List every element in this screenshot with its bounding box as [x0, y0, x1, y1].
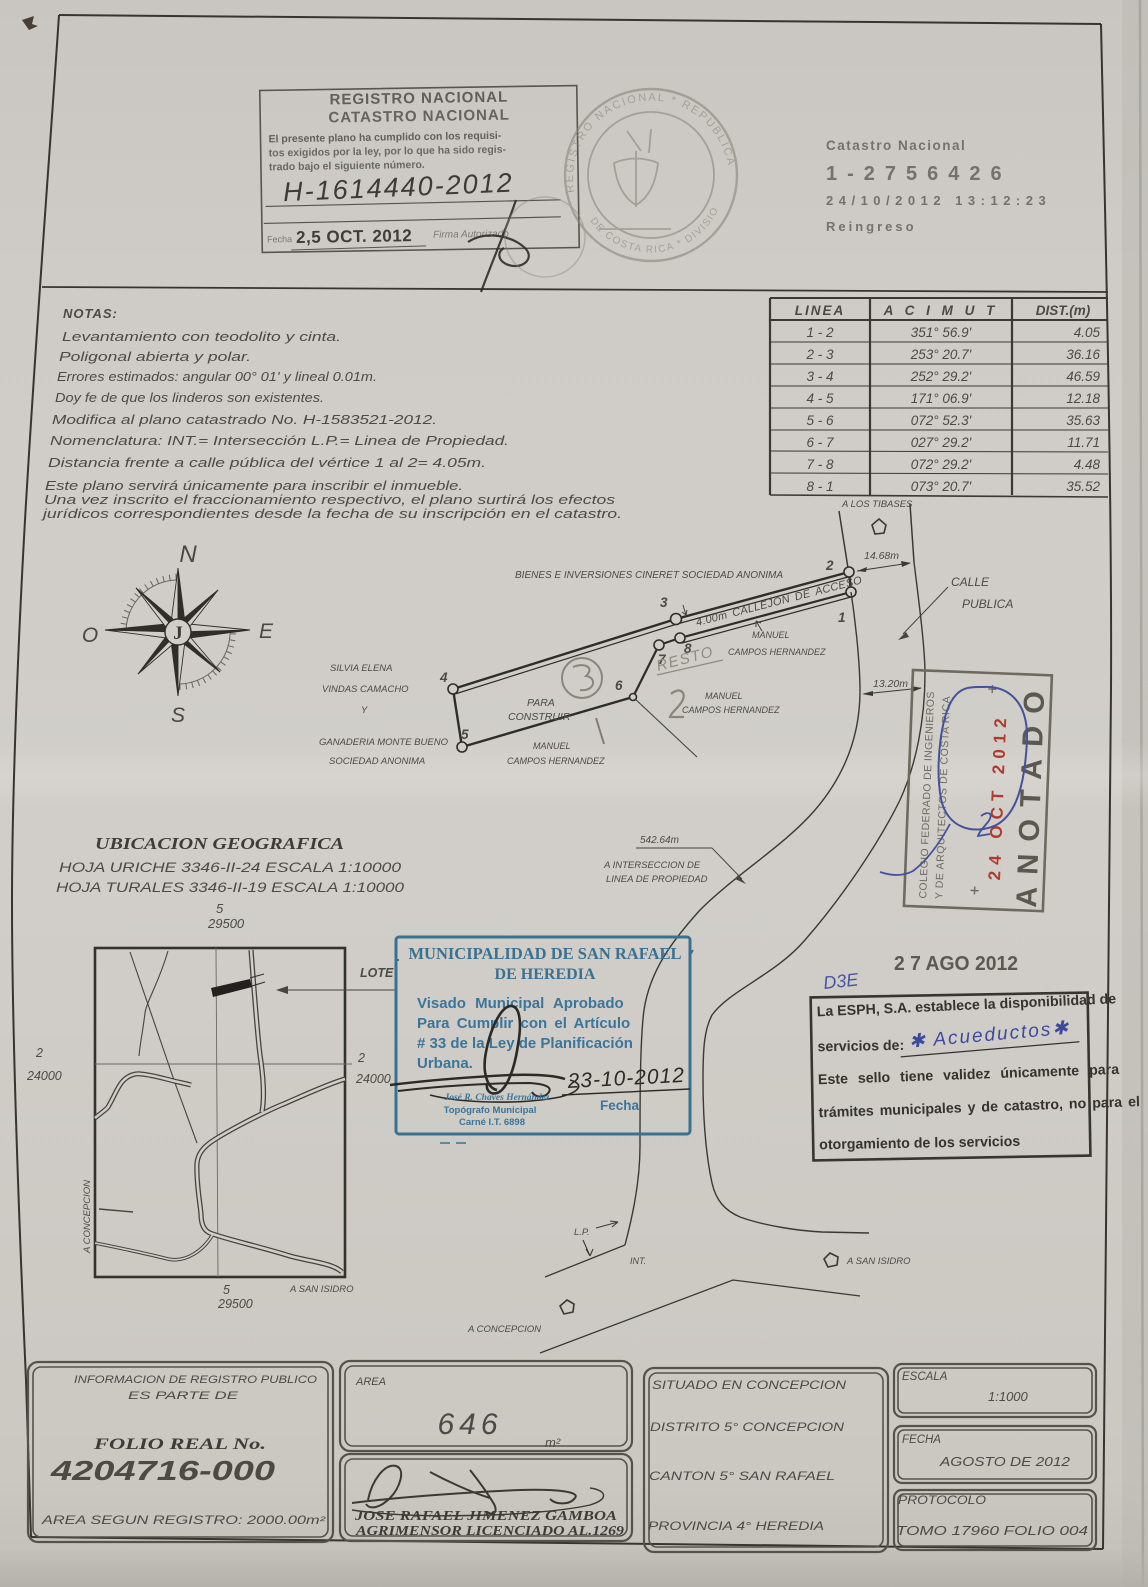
svg-text:O: O: [82, 624, 98, 647]
svg-text:2 - 3: 2 - 3: [805, 347, 834, 362]
svg-text:Errores estimados: angular 00°: Errores estimados: angular 00° 01' y lin…: [57, 369, 377, 384]
svg-text:1 - 2: 1 - 2: [806, 325, 834, 340]
svg-text:LOTE: LOTE: [360, 966, 394, 980]
svg-text:ES PARTE DE: ES PARTE DE: [128, 1390, 239, 1402]
svg-text:L.P.: L.P.: [574, 1227, 590, 1238]
svg-text:SITUADO EN CONCEPCION: SITUADO EN CONCEPCION: [652, 1378, 846, 1392]
svg-text:A SAN ISIDRO: A SAN ISIDRO: [846, 1256, 911, 1267]
svg-text:AGOSTO DE 2012: AGOSTO DE 2012: [939, 1455, 1070, 1469]
svg-text:LINEA: LINEA: [795, 303, 846, 318]
svg-text:SOCIEDAD ANONIMA: SOCIEDAD ANONIMA: [329, 756, 425, 767]
svg-text:E: E: [259, 620, 274, 643]
svg-text:072° 52.3': 072° 52.3': [911, 413, 972, 428]
svg-text:14.68m: 14.68m: [864, 550, 899, 562]
svg-text:SILVIA ELENA: SILVIA ELENA: [330, 663, 393, 674]
svg-text:46.59: 46.59: [1066, 369, 1100, 384]
svg-text:7 - 8: 7 - 8: [806, 457, 834, 472]
svg-text:A CONCEPCION: A CONCEPCION: [467, 1324, 541, 1335]
svg-text:MANUEL: MANUEL: [752, 630, 790, 640]
svg-text:CONSTRUIR: CONSTRUIR: [508, 711, 571, 723]
svg-text:D3E: D3E: [822, 969, 860, 993]
svg-text:A LOS TIBASES: A LOS TIBASES: [841, 499, 913, 510]
svg-text:5: 5: [461, 727, 469, 742]
svg-text:29500: 29500: [207, 916, 245, 931]
svg-text:Doy fe de que los linderos son: Doy fe de que los linderos son existente…: [55, 390, 324, 405]
svg-text:24000: 24000: [26, 1069, 62, 1083]
svg-text:252° 29.2': 252° 29.2': [910, 369, 972, 384]
svg-text:DE HEREDIA: DE HEREDIA: [495, 966, 596, 983]
svg-text:5 - 6: 5 - 6: [806, 413, 834, 428]
svg-text:S: S: [171, 704, 185, 727]
svg-text:TOMO 17960 FOLIO 004: TOMO 17960 FOLIO 004: [896, 1524, 1088, 1538]
svg-text:servicios de:: servicios de:: [817, 1038, 904, 1056]
svg-text:073° 20.7': 073° 20.7': [911, 479, 972, 494]
svg-text:24/10/2012 13:12:23: 24/10/2012 13:12:23: [826, 193, 1051, 208]
svg-text:CANTON 5° SAN RAFAEL: CANTON 5° SAN RAFAEL: [649, 1469, 835, 1483]
svg-text:6 - 7: 6 - 7: [806, 435, 834, 450]
svg-text:AGRIMENSOR LICENCIADO AL.1269: AGRIMENSOR LICENCIADO AL.1269: [355, 1523, 624, 1538]
svg-text:m²: m²: [545, 1435, 561, 1450]
svg-text:PUBLICA: PUBLICA: [962, 597, 1013, 611]
svg-text:GANADERIA MONTE BUENO: GANADERIA MONTE BUENO: [319, 737, 449, 748]
svg-text:2,5 OCT. 2012: 2,5 OCT. 2012: [296, 226, 412, 247]
svg-text:DISTRITO 5° CONCEPCION: DISTRITO 5° CONCEPCION: [650, 1420, 844, 1434]
svg-text:UBICACION GEOGRAFICA: UBICACION GEOGRAFICA: [95, 834, 344, 853]
svg-text:JOSE RAFAEL JIMENEZ GAMBOA: JOSE RAFAEL JIMENEZ GAMBOA: [354, 1508, 617, 1523]
svg-text:Reingreso: Reingreso: [826, 219, 917, 234]
svg-text:A CONCEPCION: A CONCEPCION: [82, 1180, 93, 1254]
svg-text:4.48: 4.48: [1074, 457, 1101, 472]
svg-text:PARA: PARA: [527, 697, 555, 709]
svg-text:LINEA DE PROPIEDAD: LINEA DE PROPIEDAD: [606, 874, 708, 885]
svg-text:6: 6: [615, 678, 623, 693]
svg-text:Fecha: Fecha: [600, 1098, 640, 1113]
svg-text:2: 2: [35, 1046, 43, 1060]
svg-text:FECHA: FECHA: [902, 1434, 941, 1446]
svg-text:jurídicos correspondientes des: jurídicos correspondientes desde la fech…: [40, 506, 622, 521]
svg-text:INFORMACION DE REGISTRO PUB: INFORMACION DE REGISTRO PUBLICO: [74, 1374, 318, 1386]
svg-text:Poligonal abierta y polar.: Poligonal abierta y polar.: [59, 349, 251, 364]
svg-text:1: 1: [838, 610, 846, 625]
svg-text:4: 4: [439, 670, 448, 685]
svg-text:2: 2: [825, 558, 834, 573]
svg-text:Y: Y: [361, 705, 368, 716]
svg-text:N: N: [179, 541, 197, 568]
svg-text:35.52: 35.52: [1066, 479, 1100, 494]
svg-text:542.64m: 542.64m: [640, 835, 679, 846]
svg-text:Distancia frente a calle públi: Distancia frente a calle pública del vér…: [48, 455, 486, 470]
svg-text:José R. Chaves Hernández: José R. Chaves Hernández: [443, 1093, 549, 1103]
svg-text:CAMPOS HERNANDEZ: CAMPOS HERNANDEZ: [507, 756, 605, 766]
svg-text:HOJA TURALES 3346-II-19 ESCALA: HOJA TURALES 3346-II-19 ESCALA 1:10000: [56, 879, 404, 895]
svg-text:Urbana.: Urbana.: [417, 1055, 473, 1072]
svg-text:Este plano servirá únicamente: Este plano servirá únicamente para inscr…: [45, 478, 463, 493]
svg-text:Topógrafo Municipal: Topógrafo Municipal: [444, 1105, 537, 1116]
svg-text:646: 646: [437, 1408, 502, 1441]
svg-text:1:1000: 1:1000: [988, 1389, 1029, 1404]
svg-text:CAMPOS HERNANDEZ: CAMPOS HERNANDEZ: [728, 647, 826, 657]
svg-text:4 - 5: 4 - 5: [806, 391, 834, 406]
svg-text:36.16: 36.16: [1066, 347, 1100, 362]
svg-text:3: 3: [660, 595, 668, 610]
svg-text:Fecha: Fecha: [267, 234, 292, 244]
svg-text:REGISTRO NACIONAL: REGISTRO NACIONAL: [329, 89, 508, 109]
svg-text:A C I M U T: A C I M U T: [883, 303, 999, 318]
svg-text:Levantamiento con teodolito y: Levantamiento con teodolito y cinta.: [62, 329, 341, 344]
svg-text:J: J: [173, 623, 183, 644]
svg-text:3 - 4: 3 - 4: [806, 369, 833, 384]
svg-text:Catastro Nacional: Catastro Nacional: [826, 138, 966, 153]
svg-text:1-2756426: 1-2756426: [826, 163, 1012, 185]
svg-text:24000: 24000: [355, 1072, 391, 1086]
svg-text:DIST.(m): DIST.(m): [1036, 303, 1091, 318]
svg-text:5: 5: [216, 901, 224, 916]
svg-text:MANUEL: MANUEL: [533, 741, 571, 751]
svg-text:CAMPOS HERNANDEZ: CAMPOS HERNANDEZ: [682, 705, 780, 715]
svg-text:5: 5: [223, 1283, 230, 1297]
svg-text:29500: 29500: [217, 1297, 253, 1311]
svg-text:2 7 AGO 2012: 2 7 AGO 2012: [894, 953, 1018, 975]
svg-text:PROTOCOLO: PROTOCOLO: [898, 1495, 986, 1507]
svg-text:AREA SEGUN REGISTRO: 2000.0: AREA SEGUN REGISTRO: 2000.00m²: [41, 1515, 327, 1527]
svg-text:Carné I.T. 6898: Carné I.T. 6898: [459, 1117, 525, 1128]
svg-text:MUNICIPALIDAD DE SAN RAFAEL: MUNICIPALIDAD DE SAN RAFAEL: [408, 944, 681, 963]
svg-text:# 33 de la Ley de Planificació: # 33 de la Ley de Planificación: [417, 1035, 633, 1052]
svg-text:AREA: AREA: [355, 1376, 386, 1388]
svg-text:Nomenclatura: INT.= Intersecci: Nomenclatura: INT.= Intersección L.P.= L…: [50, 433, 509, 448]
svg-text:PROVINCIA 4° HEREDIA: PROVINCIA 4° HEREDIA: [648, 1519, 824, 1533]
svg-text:CATASTRO NACIONAL: CATASTRO NACIONAL: [328, 107, 510, 127]
svg-text:Para Cumplir con el Artícu: Para Cumplir con el Artículo: [417, 1015, 630, 1032]
svg-text:13.20m: 13.20m: [873, 678, 908, 690]
svg-text:171° 06.9': 171° 06.9': [911, 391, 972, 406]
svg-text:ESCALA: ESCALA: [902, 1371, 948, 1383]
svg-text:4204716-000: 4204716-000: [50, 1455, 276, 1486]
svg-text:12.18: 12.18: [1066, 391, 1100, 406]
svg-text:11.71: 11.71: [1067, 435, 1100, 450]
svg-text:HOJA URICHE 3346-II-24 ESCALA: HOJA URICHE 3346-II-24 ESCALA 1:10000: [59, 859, 401, 875]
svg-text:2: 2: [357, 1051, 365, 1065]
svg-text:072° 29.2': 072° 29.2': [911, 457, 972, 472]
svg-text:VINDAS CAMACHO: VINDAS CAMACHO: [322, 684, 409, 695]
svg-text:8 - 1: 8 - 1: [806, 479, 833, 494]
svg-text:35.63: 35.63: [1066, 413, 1100, 428]
svg-text:351° 56.9': 351° 56.9': [911, 325, 972, 340]
svg-text:Modifica al plano catastrado N: Modifica al plano catastrado No. H-15835…: [52, 412, 437, 427]
svg-text:4.05: 4.05: [1074, 325, 1101, 340]
svg-text:027° 29.2': 027° 29.2': [911, 435, 972, 450]
svg-text:FOLIO REAL No.: FOLIO REAL No.: [93, 1436, 266, 1453]
svg-text:CALLE: CALLE: [951, 575, 990, 589]
svg-text:INT.: INT.: [630, 1256, 646, 1266]
svg-text:Una vez inscrito el fraccionam: Una vez inscrito el fraccionamiento resp…: [44, 492, 616, 507]
svg-text:Visado Municipal Aprobado: Visado Municipal Aprobado: [417, 995, 624, 1012]
svg-text:NOTAS:: NOTAS:: [63, 306, 118, 321]
svg-text:A SAN ISIDRO: A SAN ISIDRO: [289, 1284, 354, 1295]
svg-text:A INTERSECCION DE: A INTERSECCION DE: [603, 860, 701, 871]
svg-text:MANUEL: MANUEL: [705, 691, 743, 701]
svg-text:BIENES E INVERSIONES CINERET S: BIENES E INVERSIONES CINERET SOCIEDAD AN…: [515, 570, 783, 581]
svg-text:253° 20.7': 253° 20.7': [910, 347, 972, 362]
